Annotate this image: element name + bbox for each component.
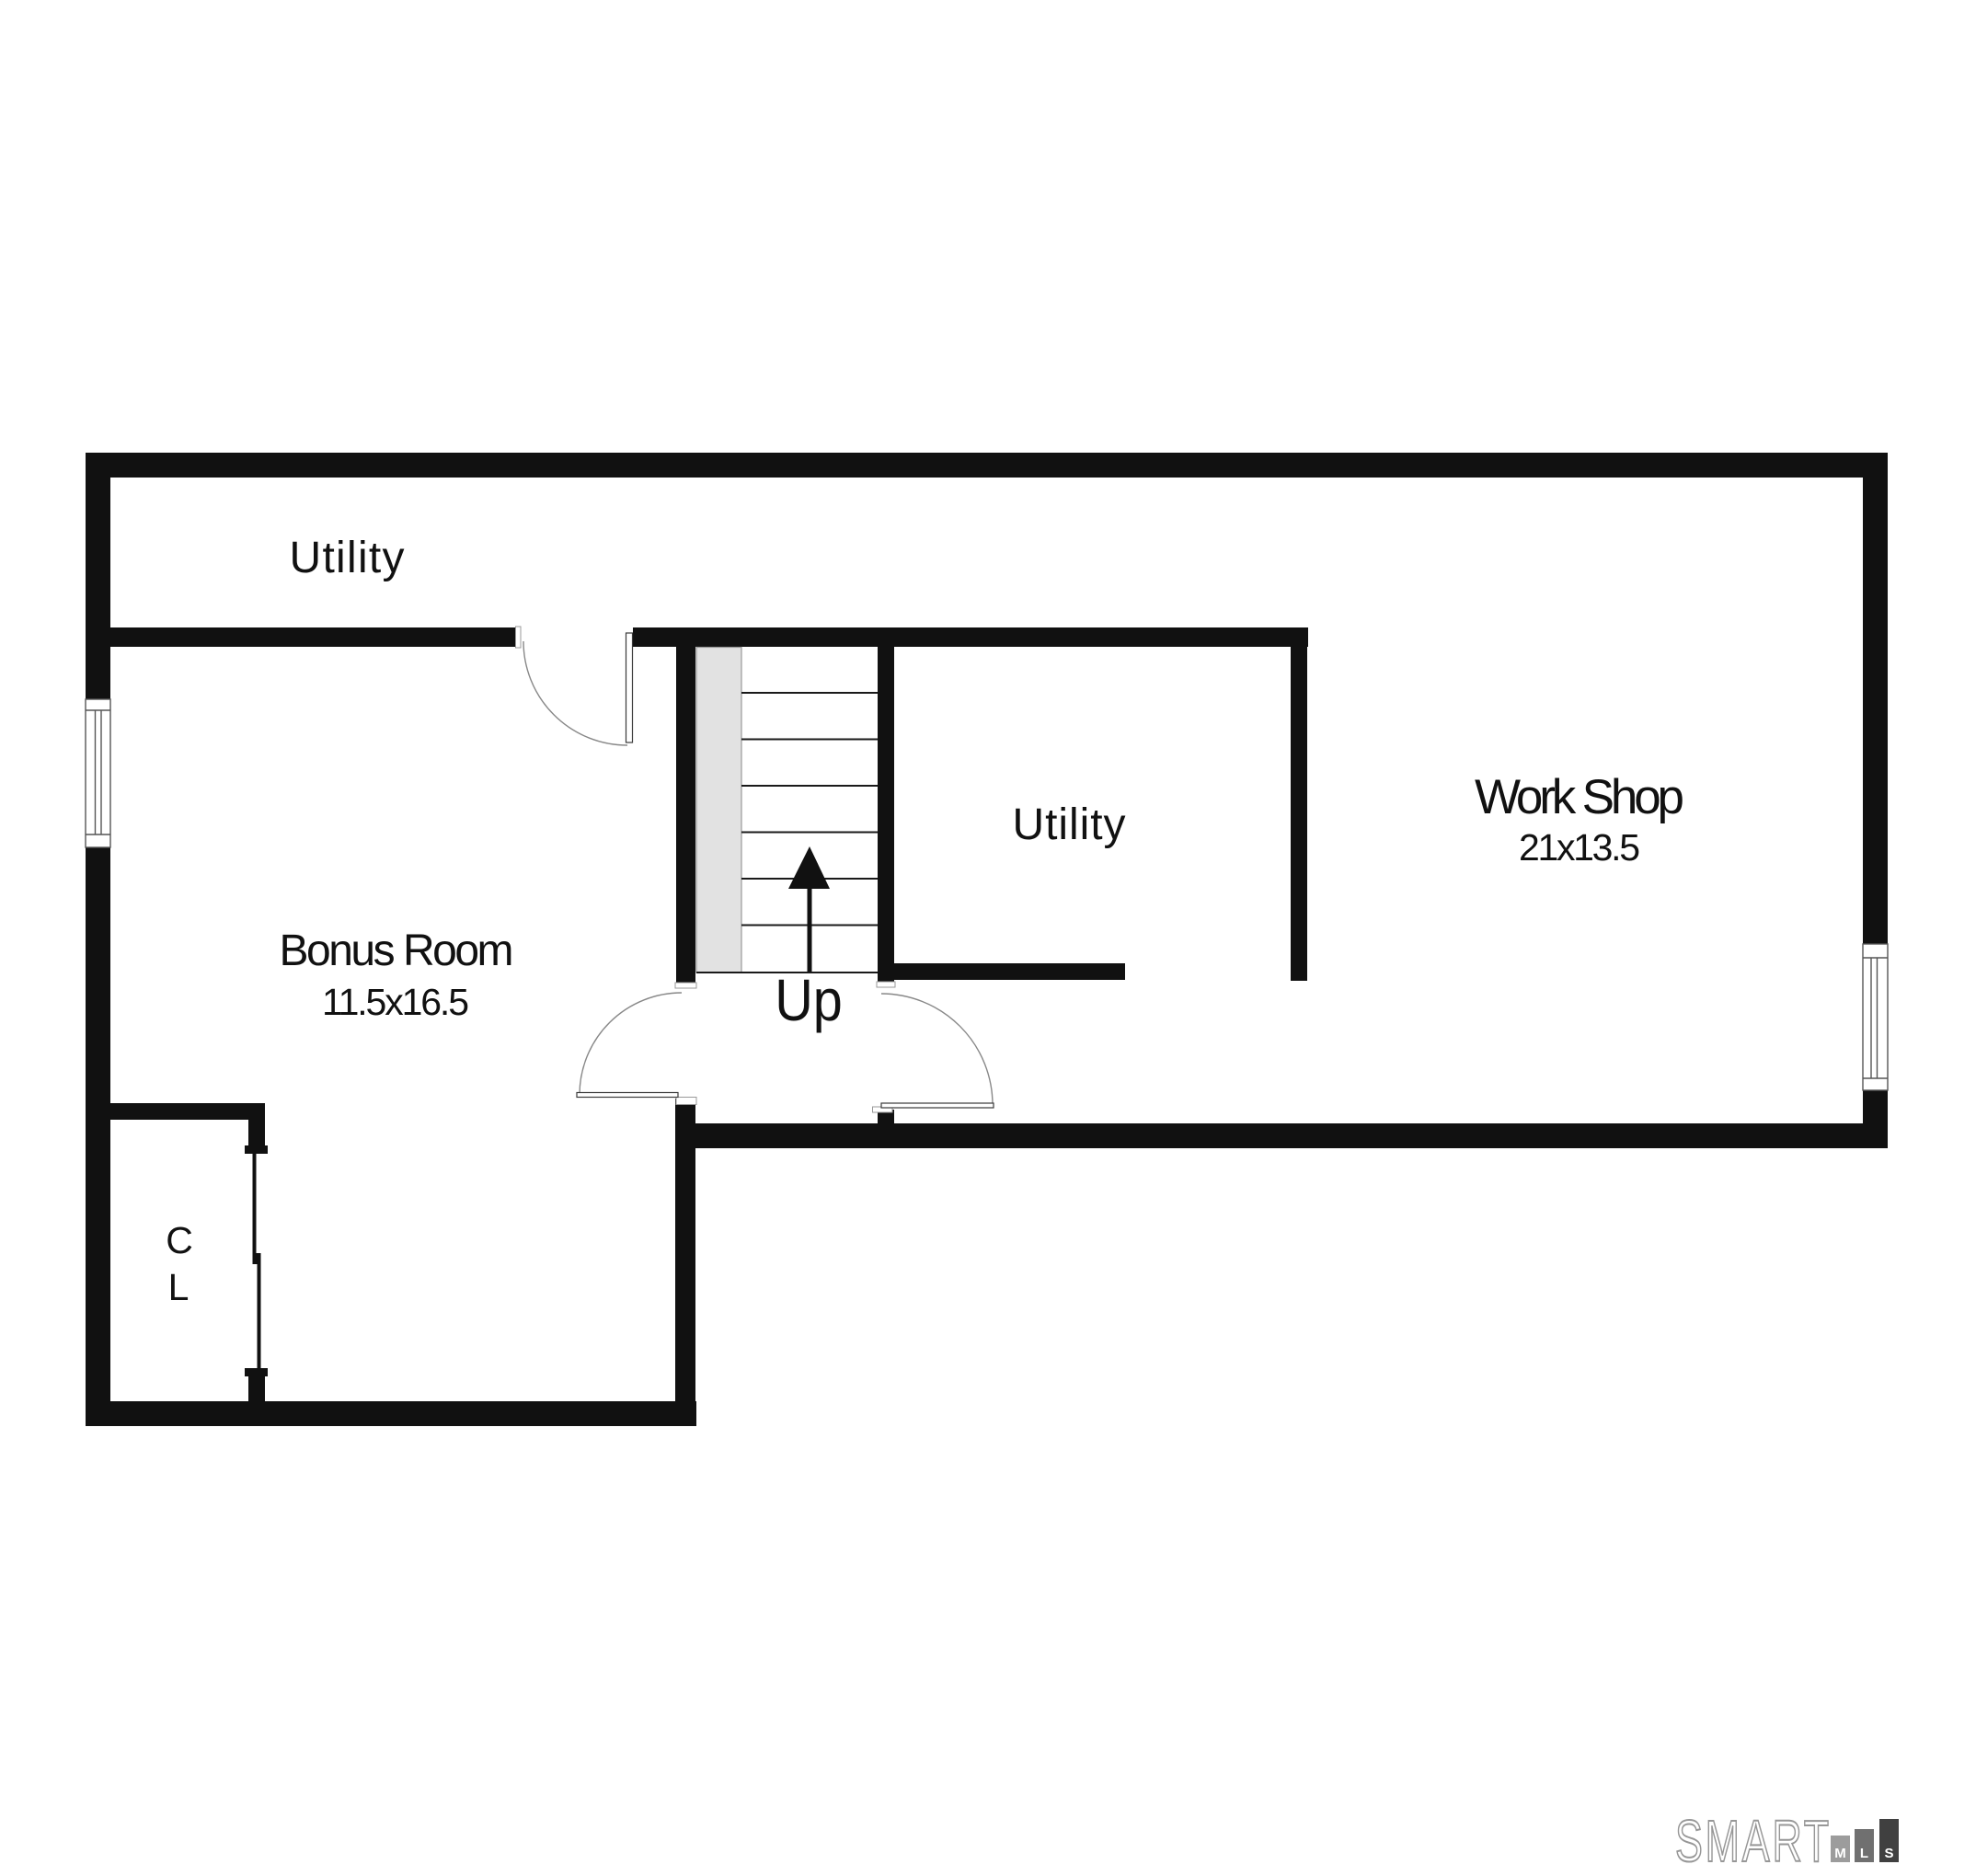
- svg-text:SMART: SMART: [1675, 1808, 1832, 1874]
- svg-text:M: M: [1834, 1846, 1846, 1861]
- svg-text:S: S: [1884, 1846, 1893, 1861]
- svg-text:Work Shop: Work Shop: [1475, 770, 1684, 824]
- svg-text:Utility: Utility: [1013, 800, 1126, 849]
- svg-text:Utility: Utility: [290, 534, 405, 582]
- svg-text:C: C: [166, 1219, 193, 1261]
- svg-text:Up: Up: [775, 967, 843, 1032]
- svg-text:11.5x16.5: 11.5x16.5: [322, 981, 469, 1023]
- svg-text:L: L: [168, 1266, 190, 1308]
- svg-text:Bonus Room: Bonus Room: [280, 926, 514, 975]
- svg-text:L: L: [1860, 1846, 1868, 1861]
- svg-text:21x13.5: 21x13.5: [1519, 826, 1640, 869]
